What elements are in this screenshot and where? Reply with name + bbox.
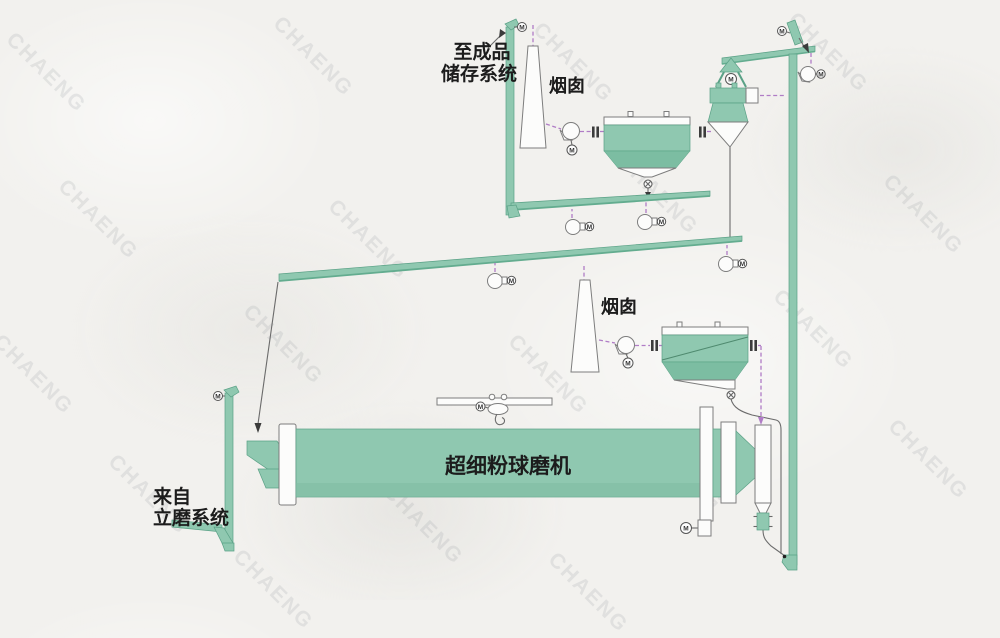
top-stub: [664, 112, 669, 117]
storage-arrowhead: [499, 29, 506, 38]
recirculation-line: [258, 282, 278, 424]
boot-inlet-dot: [783, 555, 787, 559]
process-flow-diagram: M 至成品 储存系统 烟囱 M: [0, 0, 1000, 600]
fan-icon: [719, 257, 734, 272]
elevator-boot: [222, 543, 234, 551]
discharge-chute: [755, 425, 771, 503]
gate-valve-icon: [592, 127, 595, 138]
filter-cone: [708, 122, 748, 147]
motor-label: M: [215, 393, 220, 400]
separator-skirt: [604, 151, 690, 168]
fan-outlet: [733, 260, 738, 267]
chimney2-label: 烟囱: [601, 296, 637, 317]
top-feed-chute: [722, 46, 815, 64]
hoist-block: [488, 404, 508, 415]
top-stub: [677, 322, 682, 327]
fan-icon: [563, 123, 580, 140]
motor-label: M: [625, 360, 630, 367]
separator-hopper: [674, 380, 735, 389]
rotary-feeder: [757, 513, 769, 530]
chimney-stack: [520, 46, 546, 148]
gate-valve-icon: [699, 127, 702, 138]
chimney-stack: [571, 280, 599, 372]
ball-mill: 超细粉球磨机 M: [279, 407, 773, 536]
fan-icon: [618, 337, 635, 354]
separator-top-band: [604, 117, 690, 125]
trolley-wheel: [489, 394, 495, 400]
fan-icon: [566, 220, 581, 235]
top-stub: [715, 322, 720, 327]
aeration-fan-d: M: [719, 245, 747, 272]
aeration-fan-c: M: [488, 263, 516, 289]
separator-skirt: [662, 362, 748, 380]
mill-label: 超细粉球磨机: [445, 454, 571, 478]
fan-outlet: [580, 223, 585, 230]
trolley-wheel: [501, 394, 507, 400]
bag-stub: [716, 83, 721, 88]
separator-top-band: [662, 327, 748, 335]
chimney-1: [520, 25, 546, 148]
bag-filter-unit: M: [708, 58, 786, 147]
motor-link: [787, 32, 790, 33]
separator-hopper: [618, 168, 676, 177]
motor-link: [626, 354, 628, 358]
conveyor-edge: [279, 241, 742, 281]
return-conveyor: [279, 236, 742, 281]
filter-box: [710, 88, 746, 103]
exhaust-fan-2: M: [599, 337, 663, 369]
hook-icon: [495, 414, 504, 425]
maintenance-hoist: M: [437, 394, 552, 424]
duct-to-chimney2: [599, 340, 615, 343]
motor-label: M: [740, 261, 745, 268]
motor-label: M: [818, 71, 823, 78]
separator-1: [604, 112, 712, 199]
mill-gear-housing: [721, 422, 736, 503]
motor-label: M: [587, 224, 592, 231]
mill-shell-shadow: [296, 483, 700, 497]
motor-label: M: [519, 24, 524, 31]
fan-outlet: [652, 218, 657, 225]
bag-stub: [732, 83, 737, 88]
fan-outlet: [502, 277, 507, 284]
motor-label: M: [659, 219, 664, 226]
filter-outlet-box: [746, 88, 758, 103]
chimney-2: [571, 266, 599, 372]
discharge-funnel: [755, 503, 771, 513]
stand-leg: [738, 72, 746, 87]
aeration-fan-b: M: [638, 201, 666, 230]
motor-label: M: [683, 525, 688, 532]
fan-icon: [801, 67, 816, 82]
gate-valve-icon: [655, 340, 658, 351]
gate-valve-icon: [651, 340, 654, 351]
separator-body: [604, 125, 690, 151]
mill-gearbox: [698, 520, 711, 536]
gate-valve-icon: [750, 340, 753, 351]
gate-valve-icon: [754, 340, 757, 351]
chimney1-label: 烟囱: [549, 75, 585, 96]
recirculation-arrowhead: [255, 423, 262, 433]
main-bucket-elevator: M: [778, 20, 810, 570]
motor-label: M: [779, 28, 784, 35]
motor-label: M: [509, 278, 514, 285]
chute-body: [722, 46, 815, 64]
roof-exhaust-fan: M: [798, 53, 825, 82]
gate-valve-icon: [596, 127, 599, 138]
mill-discharge-line: [763, 530, 785, 556]
fan-icon: [638, 215, 653, 230]
mill-trunnion: [713, 429, 721, 497]
to-storage-label-line1: 至成品: [453, 40, 510, 63]
motor-label: M: [478, 404, 483, 411]
motor-label: M: [728, 76, 733, 83]
product-conveyor: [507, 191, 710, 218]
from-mill-label-line2: 立磨系统: [153, 506, 229, 529]
fan-icon: [488, 274, 503, 289]
elevator-casing: [789, 54, 797, 565]
top-stub: [628, 112, 633, 117]
mill-bearing-right: [700, 407, 713, 521]
mill-discharge-cone: [736, 431, 757, 495]
aeration-fan-a: M: [566, 209, 594, 235]
motor-label: M: [569, 147, 574, 154]
gate-valve-icon: [703, 127, 706, 138]
filter-skirt: [708, 103, 748, 122]
duct-arrowhead: [758, 417, 764, 425]
exhaust-fan-1: M: [546, 123, 605, 156]
from-mill-label-line1: 来自: [153, 485, 191, 508]
to-storage-label-line2: 储存系统: [441, 62, 517, 85]
mill-bearing-left: [279, 424, 296, 505]
duct-to-chimney1: [546, 124, 561, 129]
motor-link: [571, 140, 572, 145]
